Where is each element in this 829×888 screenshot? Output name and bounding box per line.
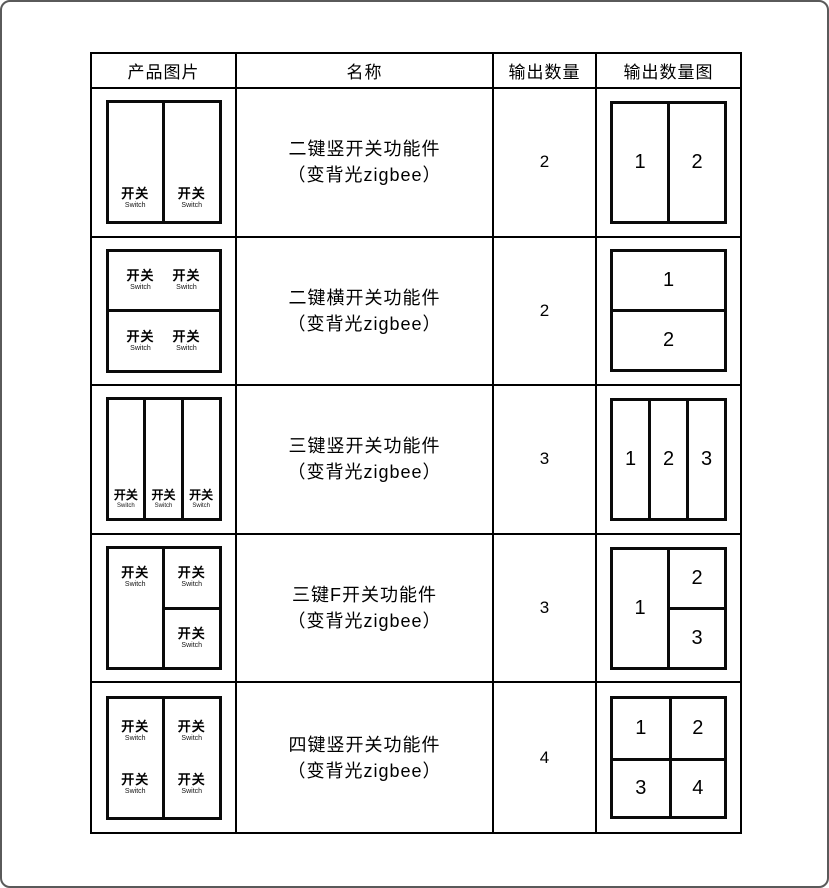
product-name-line1: 四键竖开关功能件 bbox=[289, 732, 441, 758]
switch-label-en: Switch bbox=[181, 788, 202, 796]
switch-label-cn: 开关 bbox=[178, 566, 206, 581]
switch-label: 开关 Switch bbox=[172, 330, 200, 353]
product-name-line2: （变背光zigbee） bbox=[287, 459, 441, 485]
product-table: 产品图片 名称 输出数量 输出数量图 开关 Switch 开关 Switch bbox=[90, 52, 742, 834]
switch-label-cn: 开关 bbox=[189, 489, 213, 503]
switch-key: 开关 Switch 开关 Switch bbox=[162, 699, 219, 817]
switch-label: 开关 Switch bbox=[121, 720, 149, 743]
diagram-cell: 2 bbox=[667, 104, 724, 221]
table-row-2-quantity: 2 bbox=[494, 238, 597, 387]
switch-key: 开关 Switch bbox=[162, 103, 219, 221]
switch-label: 开关 Switch bbox=[178, 566, 206, 589]
product-name-line2: （变背光zigbee） bbox=[287, 162, 441, 188]
switch-label-cn: 开关 bbox=[178, 720, 206, 735]
product-name-line1: 二键竖开关功能件 bbox=[289, 136, 441, 162]
diagram-cell: 3 bbox=[670, 607, 724, 667]
diagram-cell: 2 bbox=[669, 699, 725, 758]
product-name-line1: 三键F开关功能件 bbox=[292, 582, 437, 608]
switch-label-en: Switch bbox=[181, 581, 202, 589]
switch-thumbnail-2key-vertical: 开关 Switch 开关 Switch bbox=[106, 100, 222, 224]
switch-label: 开关 Switch bbox=[178, 773, 206, 796]
switch-key: 开关 Switch bbox=[165, 607, 219, 668]
switch-key-column: 开关 Switch 开关 Switch bbox=[165, 549, 219, 667]
diagram-cell: 4 bbox=[669, 758, 725, 817]
switch-key: 开关 Switch 开关 Switch bbox=[109, 699, 163, 817]
switch-key: 开关 Switch bbox=[165, 549, 219, 607]
output-diagram-2-vertical: 1 2 bbox=[610, 101, 727, 224]
table-row-4-name: 三键F开关功能件 （变背光zigbee） bbox=[237, 535, 494, 684]
switch-label-cn: 开关 bbox=[178, 773, 206, 788]
switch-thumbnail-3key-vertical: 开关 Switch 开关 Switch 开关 Switch bbox=[106, 397, 222, 521]
switch-label-en: Switch bbox=[130, 284, 151, 292]
table-row-3-product-image: 开关 Switch 开关 Switch 开关 Switch bbox=[92, 386, 237, 535]
table-row-4-diagram: 1 2 3 bbox=[597, 535, 740, 684]
switch-label: 开关 Switch bbox=[114, 489, 138, 510]
output-diagram-3-vertical: 1 2 3 bbox=[610, 398, 727, 521]
diagram-cell: 2 bbox=[670, 550, 724, 607]
table-row-1-product-image: 开关 Switch 开关 Switch bbox=[92, 89, 237, 238]
switch-label-cn: 开关 bbox=[121, 566, 149, 581]
diagram-cell: 3 bbox=[613, 758, 669, 817]
table-row-5-product-image: 开关 Switch 开关 Switch 开关 Switch 开关 bbox=[92, 683, 237, 832]
switch-label-en: Switch bbox=[176, 345, 197, 353]
switch-label-en: Switch bbox=[181, 735, 202, 743]
switch-label-en: Switch bbox=[181, 642, 202, 650]
table-row-3-quantity: 3 bbox=[494, 386, 597, 535]
switch-label-en: Switch bbox=[125, 581, 146, 589]
switch-label-en: Switch bbox=[181, 202, 202, 210]
header-name: 名称 bbox=[237, 54, 494, 89]
diagram-cell: 1 bbox=[613, 550, 670, 667]
table-row-2-name: 二键横开关功能件 （变背光zigbee） bbox=[237, 238, 494, 387]
product-name-line1: 三键竖开关功能件 bbox=[289, 433, 441, 459]
product-name-line2: （变背光zigbee） bbox=[287, 311, 441, 337]
table-row-3-diagram: 1 2 3 bbox=[597, 386, 740, 535]
product-name-line2: （变背光zigbee） bbox=[287, 758, 441, 784]
switch-thumbnail-4key-vertical: 开关 Switch 开关 Switch 开关 Switch 开关 bbox=[106, 696, 222, 820]
switch-label-en: Switch bbox=[125, 735, 146, 743]
switch-label-en: Switch bbox=[176, 284, 197, 292]
switch-thumbnail-3key-f: 开关 Switch 开关 Switch 开关 Switch bbox=[106, 546, 222, 670]
table-row-2-diagram: 1 2 bbox=[597, 238, 740, 387]
product-spec-sheet: 产品图片 名称 输出数量 输出数量图 开关 Switch 开关 Switch bbox=[0, 0, 829, 888]
diagram-cell: 1 bbox=[613, 104, 667, 221]
output-diagram-2x2-grid: 1 2 3 4 bbox=[610, 696, 727, 819]
switch-label-cn: 开关 bbox=[121, 773, 149, 788]
switch-label: 开关 Switch bbox=[189, 489, 213, 510]
table-row-4-product-image: 开关 Switch 开关 Switch 开关 Switch bbox=[92, 535, 237, 684]
switch-label-en: Switch bbox=[125, 202, 146, 210]
header-product-image: 产品图片 bbox=[92, 54, 237, 89]
diagram-right-column: 2 3 bbox=[670, 550, 724, 667]
table-row-1-quantity: 2 bbox=[494, 89, 597, 238]
header-output-quantity: 输出数量 bbox=[494, 54, 597, 89]
switch-label-cn: 开关 bbox=[152, 489, 176, 503]
output-diagram-f-split: 1 2 3 bbox=[610, 547, 727, 670]
switch-label: 开关 Switch bbox=[152, 489, 176, 510]
switch-label-cn: 开关 bbox=[172, 330, 200, 345]
table-row-5-quantity: 4 bbox=[494, 683, 597, 832]
switch-key: 开关 Switch 开关 Switch bbox=[109, 309, 219, 370]
switch-label-en: Switch bbox=[155, 503, 173, 510]
table-row-2-product-image: 开关 Switch 开关 Switch 开关 Switch 开关 bbox=[92, 238, 237, 387]
switch-label-cn: 开关 bbox=[114, 489, 138, 503]
product-name-line1: 二键横开关功能件 bbox=[289, 285, 441, 311]
switch-key: 开关 Switch bbox=[181, 400, 219, 518]
table-row-1-diagram: 1 2 bbox=[597, 89, 740, 238]
table-row-3-name: 三键竖开关功能件 （变背光zigbee） bbox=[237, 386, 494, 535]
switch-label-cn: 开关 bbox=[121, 720, 149, 735]
table-row-5-name: 四键竖开关功能件 （变背光zigbee） bbox=[237, 683, 494, 832]
header-output-quantity-diagram: 输出数量图 bbox=[597, 54, 740, 89]
switch-label: 开关 Switch bbox=[178, 187, 206, 210]
diagram-cell: 1 bbox=[613, 252, 724, 309]
output-diagram-2-horizontal: 1 2 bbox=[610, 249, 727, 372]
switch-key: 开关 Switch bbox=[109, 549, 166, 667]
switch-label-cn: 开关 bbox=[172, 269, 200, 284]
switch-label: 开关 Switch bbox=[126, 269, 154, 292]
switch-key: 开关 Switch bbox=[143, 400, 181, 518]
switch-label-cn: 开关 bbox=[126, 269, 154, 284]
switch-label-en: Switch bbox=[117, 503, 135, 510]
table-row-5-diagram: 1 2 3 4 bbox=[597, 683, 740, 832]
switch-label: 开关 Switch bbox=[126, 330, 154, 353]
diagram-cell: 1 bbox=[613, 401, 648, 518]
switch-key: 开关 Switch bbox=[109, 103, 163, 221]
switch-label-en: Switch bbox=[130, 345, 151, 353]
switch-key: 开关 Switch bbox=[109, 400, 144, 518]
switch-label: 开关 Switch bbox=[178, 627, 206, 650]
switch-label-cn: 开关 bbox=[121, 187, 149, 202]
switch-key: 开关 Switch 开关 Switch bbox=[109, 252, 219, 310]
switch-thumbnail-2key-horizontal: 开关 Switch 开关 Switch 开关 Switch 开关 bbox=[106, 249, 222, 373]
diagram-cell: 1 bbox=[613, 699, 669, 758]
diagram-cell: 2 bbox=[613, 309, 724, 369]
switch-label-cn: 开关 bbox=[178, 627, 206, 642]
switch-label: 开关 Switch bbox=[121, 187, 149, 210]
switch-label-en: Switch bbox=[125, 788, 146, 796]
switch-label-cn: 开关 bbox=[178, 187, 206, 202]
switch-label: 开关 Switch bbox=[121, 773, 149, 796]
switch-label-cn: 开关 bbox=[126, 330, 154, 345]
switch-label-en: Switch bbox=[192, 503, 210, 510]
product-name-line2: （变背光zigbee） bbox=[287, 608, 441, 634]
switch-label: 开关 Switch bbox=[172, 269, 200, 292]
table-row-1-name: 二键竖开关功能件 （变背光zigbee） bbox=[237, 89, 494, 238]
diagram-cell: 3 bbox=[686, 401, 724, 518]
switch-label: 开关 Switch bbox=[178, 720, 206, 743]
diagram-cell: 2 bbox=[648, 401, 686, 518]
switch-label: 开关 Switch bbox=[121, 566, 149, 589]
table-row-4-quantity: 3 bbox=[494, 535, 597, 684]
